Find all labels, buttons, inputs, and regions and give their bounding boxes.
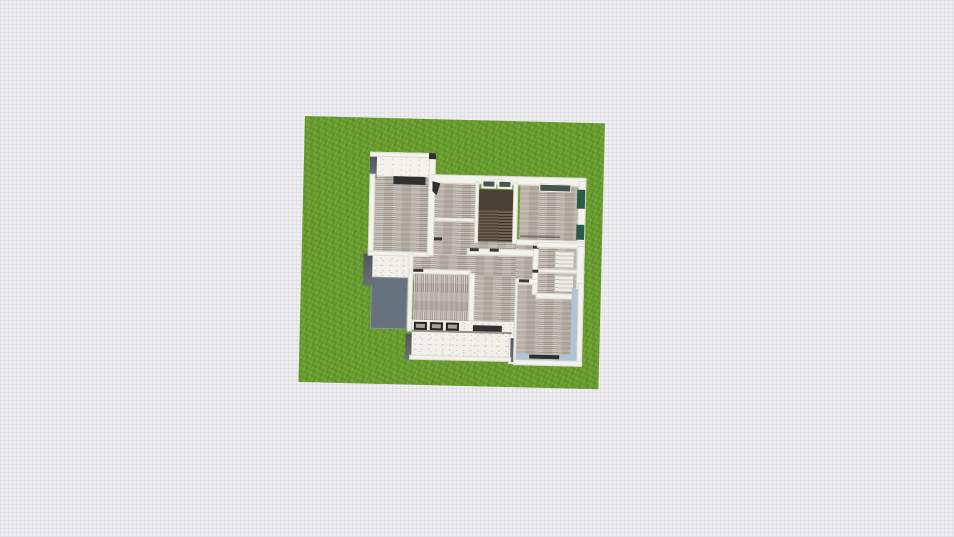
- kitchen-east-wall[interactable]: [468, 273, 475, 321]
- room-hall-top[interactable]: [435, 183, 476, 218]
- skylight-window-right[interactable]: [497, 180, 512, 189]
- door-lintel-hall-a: [470, 248, 479, 251]
- stair-flight[interactable]: [478, 210, 513, 242]
- grass-lot[interactable]: [299, 116, 605, 389]
- vanity-upper[interactable]: [554, 250, 574, 268]
- patio[interactable]: [370, 277, 408, 330]
- entry-porch[interactable]: [372, 253, 410, 280]
- design-canvas[interactable]: [0, 0, 954, 537]
- window-top-right-bedroom[interactable]: [539, 184, 571, 193]
- stair-landing[interactable]: [479, 189, 514, 211]
- wardrobe-green-panel-lower[interactable]: [576, 225, 584, 240]
- wall-side-left-dark: [363, 253, 373, 285]
- dresser[interactable]: [393, 176, 425, 185]
- room-bedroom-top-left[interactable]: [374, 176, 429, 254]
- door-lintel-bedroom-br: [519, 279, 529, 282]
- door-lintel-hall-b: [490, 249, 499, 252]
- divider-wall-dark-cap: [429, 153, 436, 159]
- door-lintel-bath: [434, 237, 442, 240]
- hallway-lower[interactable]: [474, 275, 515, 324]
- skylight-window-left[interactable]: [481, 179, 496, 188]
- room-kitchen[interactable]: [413, 274, 471, 323]
- door-lintel-kitchen: [413, 269, 423, 272]
- window-sill: [529, 355, 559, 360]
- wardrobe-green-panel-upper[interactable]: [577, 190, 585, 209]
